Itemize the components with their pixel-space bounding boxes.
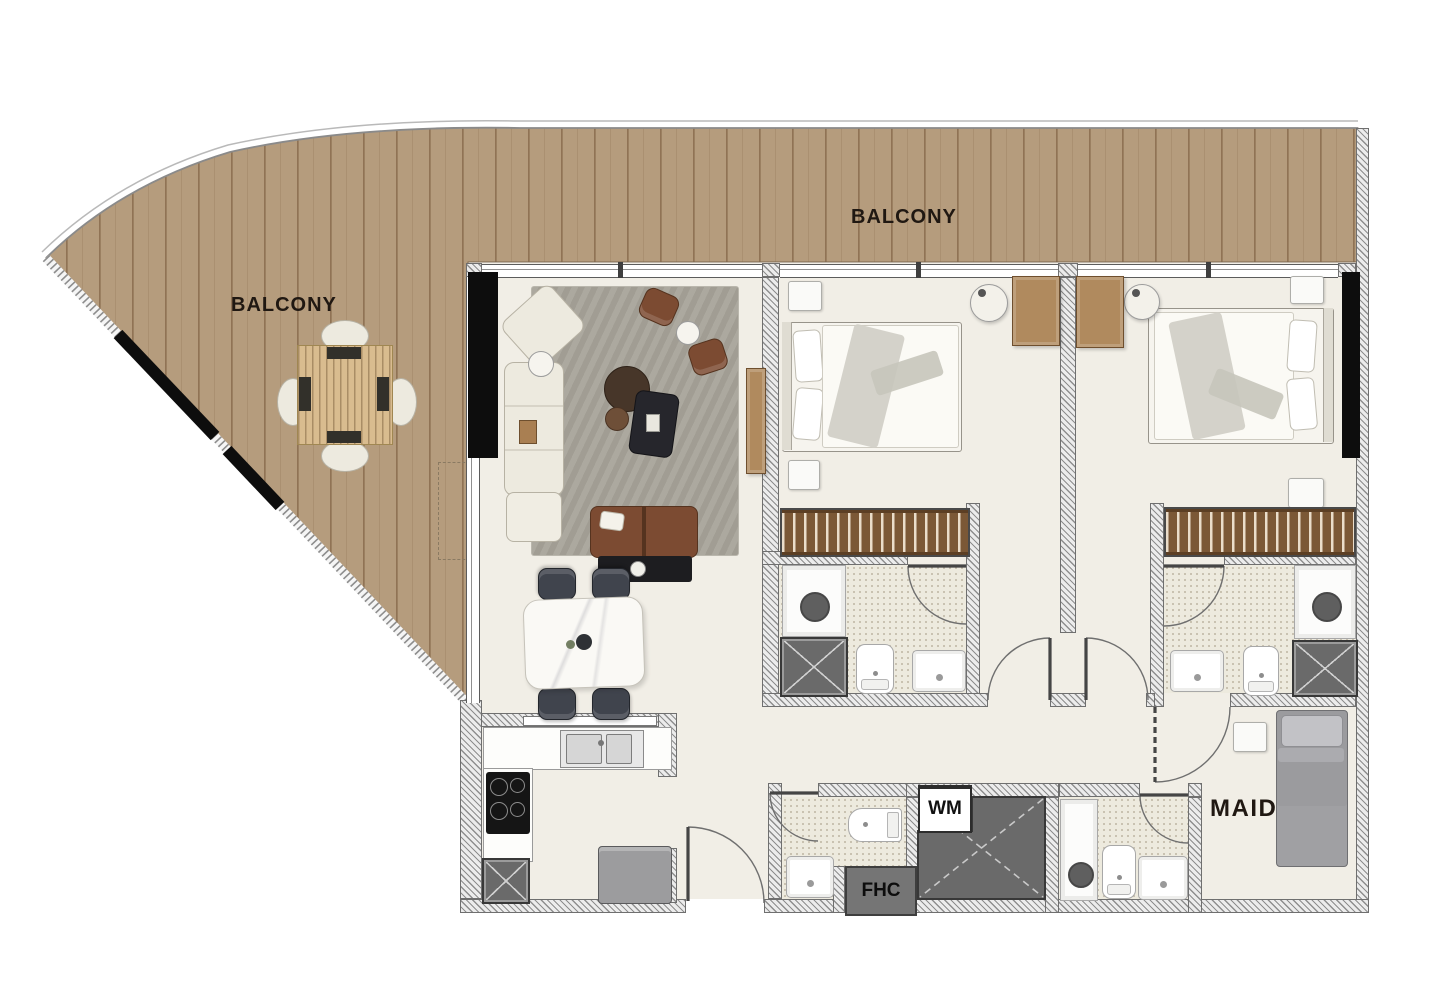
door-arc-bed2 [1086, 638, 1148, 700]
door-arc-bed1 [988, 638, 1050, 700]
floor-plan: WM FHC BALCON [0, 0, 1440, 995]
door-arc-maid-room [1155, 707, 1230, 782]
maid-room-label: MAID [1210, 795, 1277, 823]
balcony-left-label: BALCONY [231, 294, 337, 317]
door-arc-maid-bath [1140, 795, 1188, 843]
door-arc-entry [688, 827, 764, 903]
door-swings-layer [0, 0, 1440, 995]
door-arc-bath1 [908, 566, 966, 624]
door-arc-bath2 [1164, 566, 1224, 626]
door-arc-guest-bath [770, 793, 818, 841]
balcony-top-label: BALCONY [851, 206, 957, 229]
